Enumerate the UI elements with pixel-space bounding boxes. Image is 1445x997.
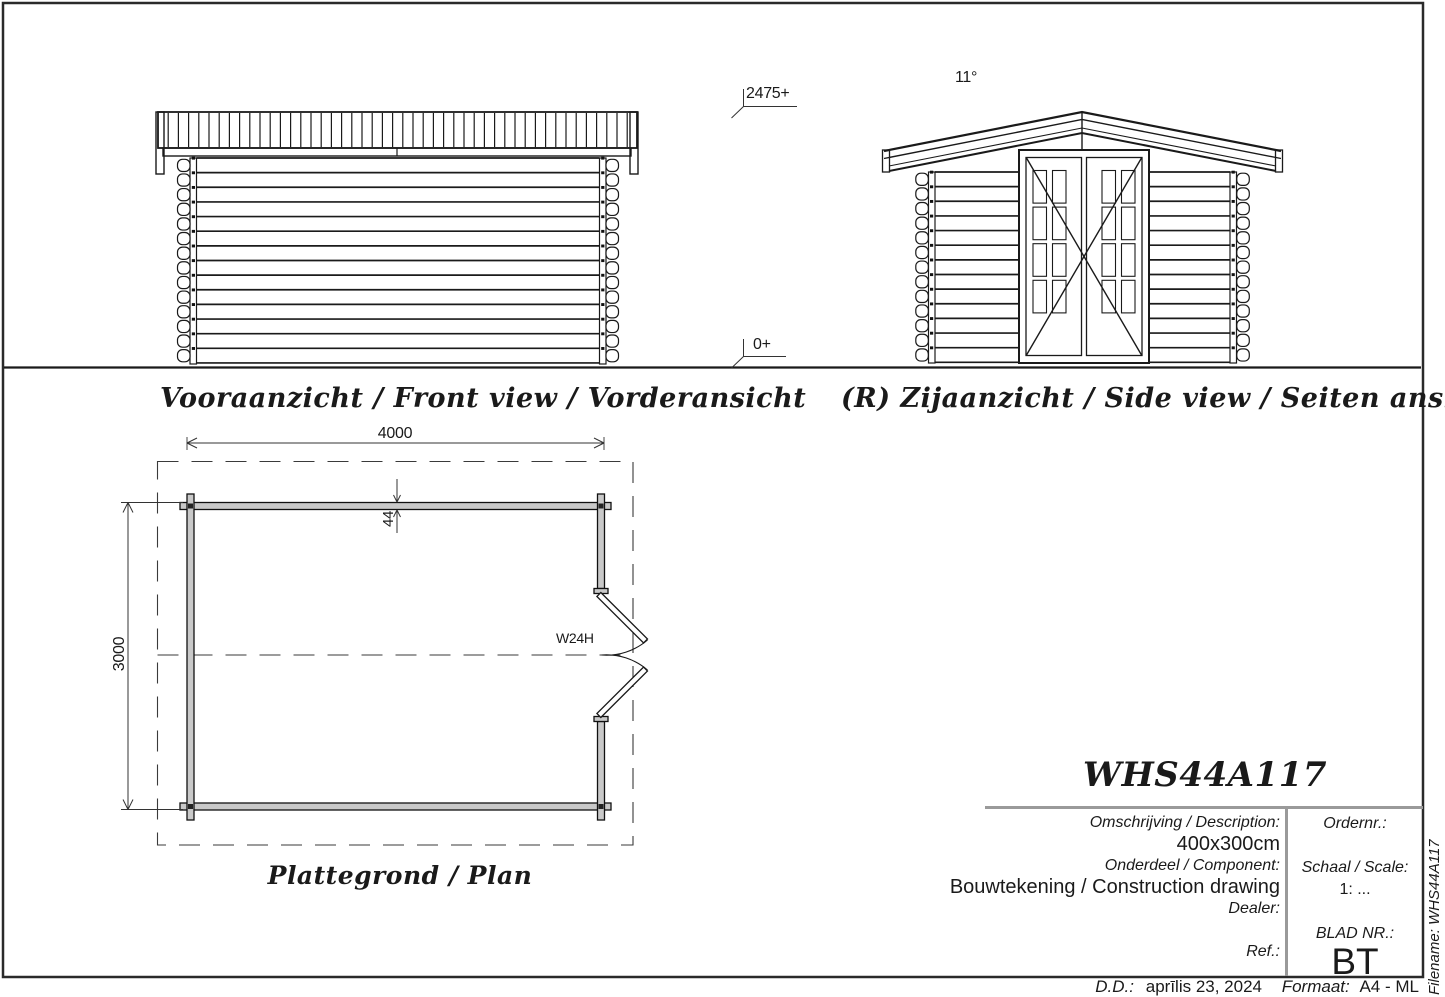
- date-value: aprīlis 23, 2024: [1146, 977, 1262, 996]
- dimension-lines: [121, 89, 797, 810]
- format-label: Formaat:: [1282, 977, 1350, 996]
- ground-level-dimension: 0+: [753, 336, 771, 354]
- side-view-label: (R) Zijaanzicht / Side view / Seiten ans…: [841, 383, 1321, 414]
- plan-walls: [180, 494, 611, 820]
- plan-door: [597, 593, 648, 718]
- plan-depth-dimension: 3000: [111, 630, 129, 678]
- format-line: Formaat: A4 - ML: [1282, 977, 1419, 997]
- date-line: D.D.: aprīlis 23, 2024: [1095, 977, 1262, 997]
- scale-value: 1: ...: [1289, 881, 1421, 899]
- wall-thickness-dimension: 44: [380, 504, 397, 534]
- title-block-right-column: Ordernr.: Schaal / Scale: 1: ... BLAD NR…: [1289, 813, 1421, 980]
- order-number-label: Ordernr.:: [1289, 813, 1421, 834]
- plan-view-label: Plattegrond / Plan: [160, 861, 640, 890]
- filename-vertical-label: Filename: WHS44A117: [1426, 839, 1443, 995]
- plan-view-drawing: [158, 462, 648, 846]
- roof-angle-dimension: 11°: [955, 69, 977, 87]
- date-label: D.D.:: [1095, 977, 1134, 996]
- model-number-title: WHS44A117: [985, 755, 1425, 795]
- ridge-height-dimension: 2475+: [746, 85, 789, 103]
- scale-label: Schaal / Scale:: [1289, 857, 1421, 878]
- description-label: Omschrijving / Description:: [880, 812, 1280, 833]
- sheet-number-value: BT: [1289, 944, 1421, 980]
- plan-width-dimension: 4000: [345, 425, 445, 443]
- front-view-label: Vooraanzicht / Front view / Vorderansich…: [160, 383, 640, 414]
- dealer-label: Dealer:: [880, 898, 1280, 919]
- component-value: Bouwtekening / Construction drawing: [880, 876, 1280, 898]
- title-block-left-column: Omschrijving / Description: 400x300cm On…: [880, 812, 1280, 962]
- component-label: Onderdeel / Component:: [880, 855, 1280, 876]
- description-value: 400x300cm: [880, 833, 1280, 855]
- double-door-drawing: [1019, 150, 1149, 363]
- corner-joints: [188, 504, 604, 810]
- front-view-drawing: [156, 112, 638, 364]
- ref-label: Ref.:: [880, 941, 1280, 962]
- door-code-label: W24H: [556, 630, 594, 646]
- side-view-drawing: [883, 112, 1283, 363]
- format-value: A4 - ML: [1359, 977, 1419, 996]
- construction-drawing-page: 2475+ 11° 0+ Vooraanzicht / Front view /…: [0, 0, 1445, 997]
